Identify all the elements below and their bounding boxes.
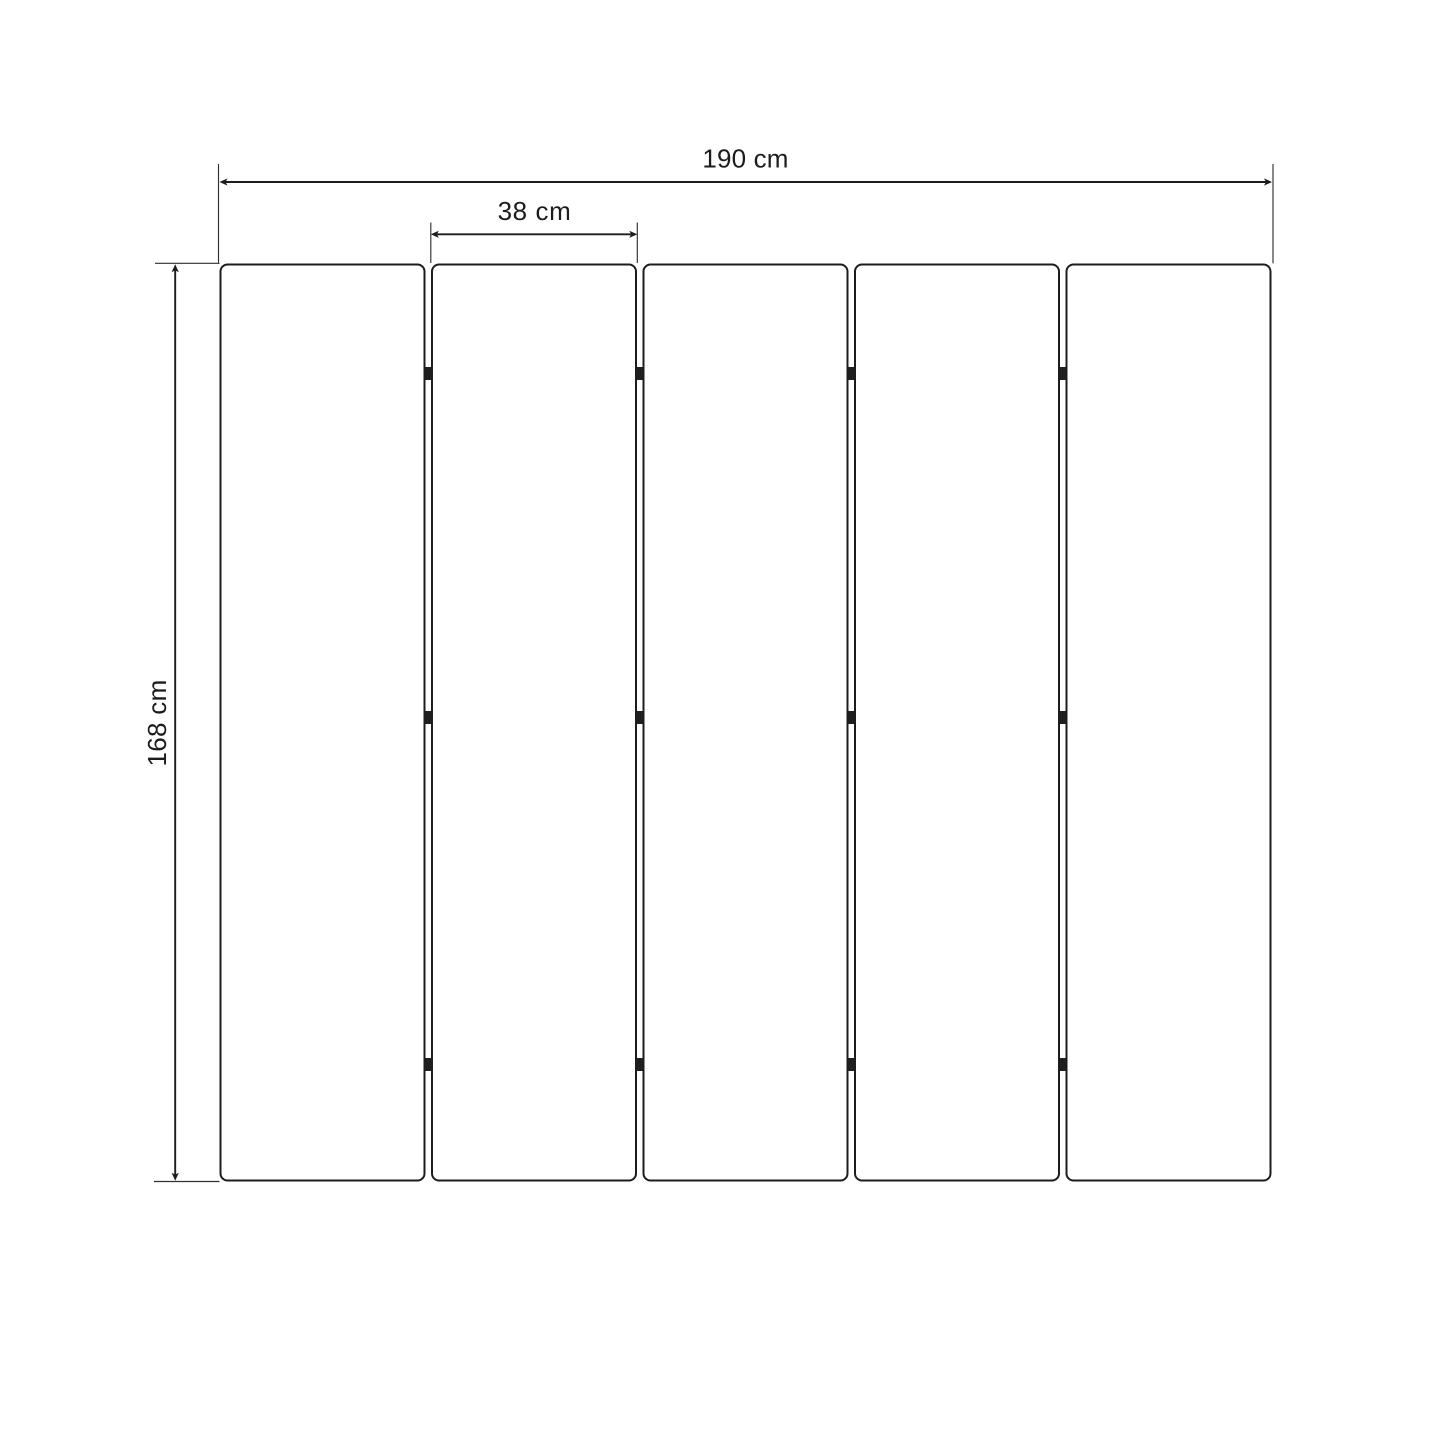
svg-text:38 cm: 38 cm (498, 196, 572, 226)
svg-text:168 cm: 168 cm (142, 679, 172, 766)
svg-text:190 cm: 190 cm (702, 144, 788, 174)
